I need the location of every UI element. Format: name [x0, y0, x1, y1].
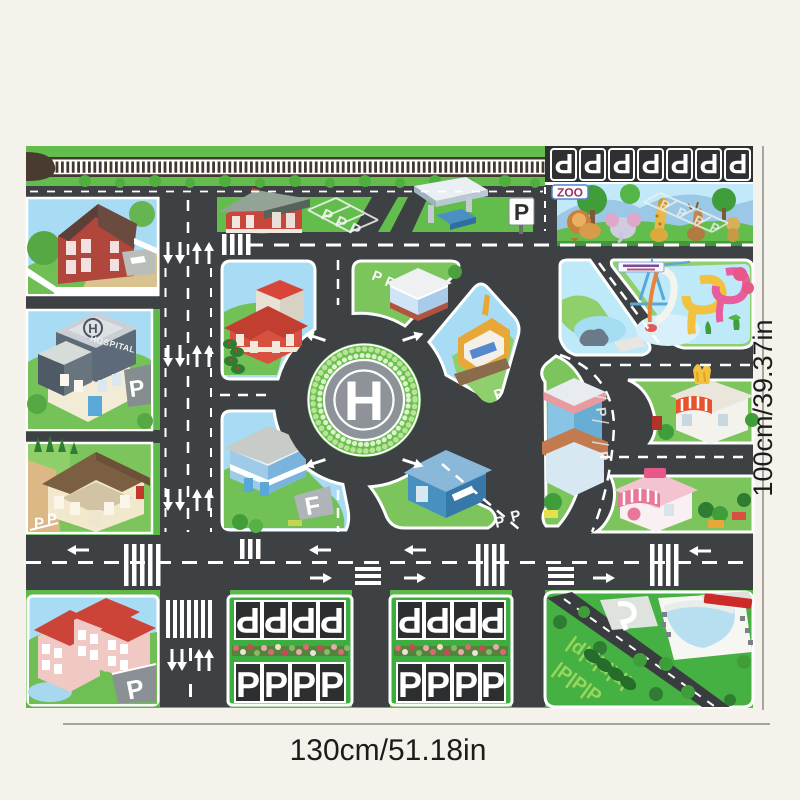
svg-text:P: P — [700, 148, 719, 179]
svg-text:P: P — [264, 664, 288, 705]
svg-text:P: P — [555, 148, 574, 179]
svg-text:P: P — [236, 600, 260, 641]
svg-text:P: P — [426, 600, 450, 641]
svg-text:130cm/51.18in: 130cm/51.18in — [290, 734, 487, 767]
svg-text:H: H — [344, 369, 384, 432]
svg-text:P: P — [236, 664, 260, 705]
svg-text:P: P — [729, 148, 748, 179]
svg-text:100cm/39.37in: 100cm/39.37in — [748, 319, 778, 496]
svg-text:P: P — [454, 600, 478, 641]
svg-text:P: P — [320, 664, 344, 705]
svg-text:P: P — [426, 664, 450, 705]
svg-text:P: P — [642, 148, 661, 179]
svg-text:P: P — [398, 600, 422, 641]
svg-text:P: P — [514, 199, 529, 225]
svg-text:P: P — [454, 664, 478, 705]
svg-text:P: P — [320, 600, 344, 641]
svg-text:P: P — [292, 600, 316, 641]
svg-text:P: P — [481, 664, 505, 705]
svg-text:P: P — [292, 664, 316, 705]
svg-text:ZOO: ZOO — [557, 186, 583, 200]
svg-text:P: P — [264, 600, 288, 641]
svg-text:P: P — [481, 600, 505, 641]
svg-text:P: P — [613, 148, 632, 179]
svg-text:P: P — [584, 148, 603, 179]
svg-text:P: P — [671, 148, 690, 179]
svg-text:P: P — [398, 664, 422, 705]
